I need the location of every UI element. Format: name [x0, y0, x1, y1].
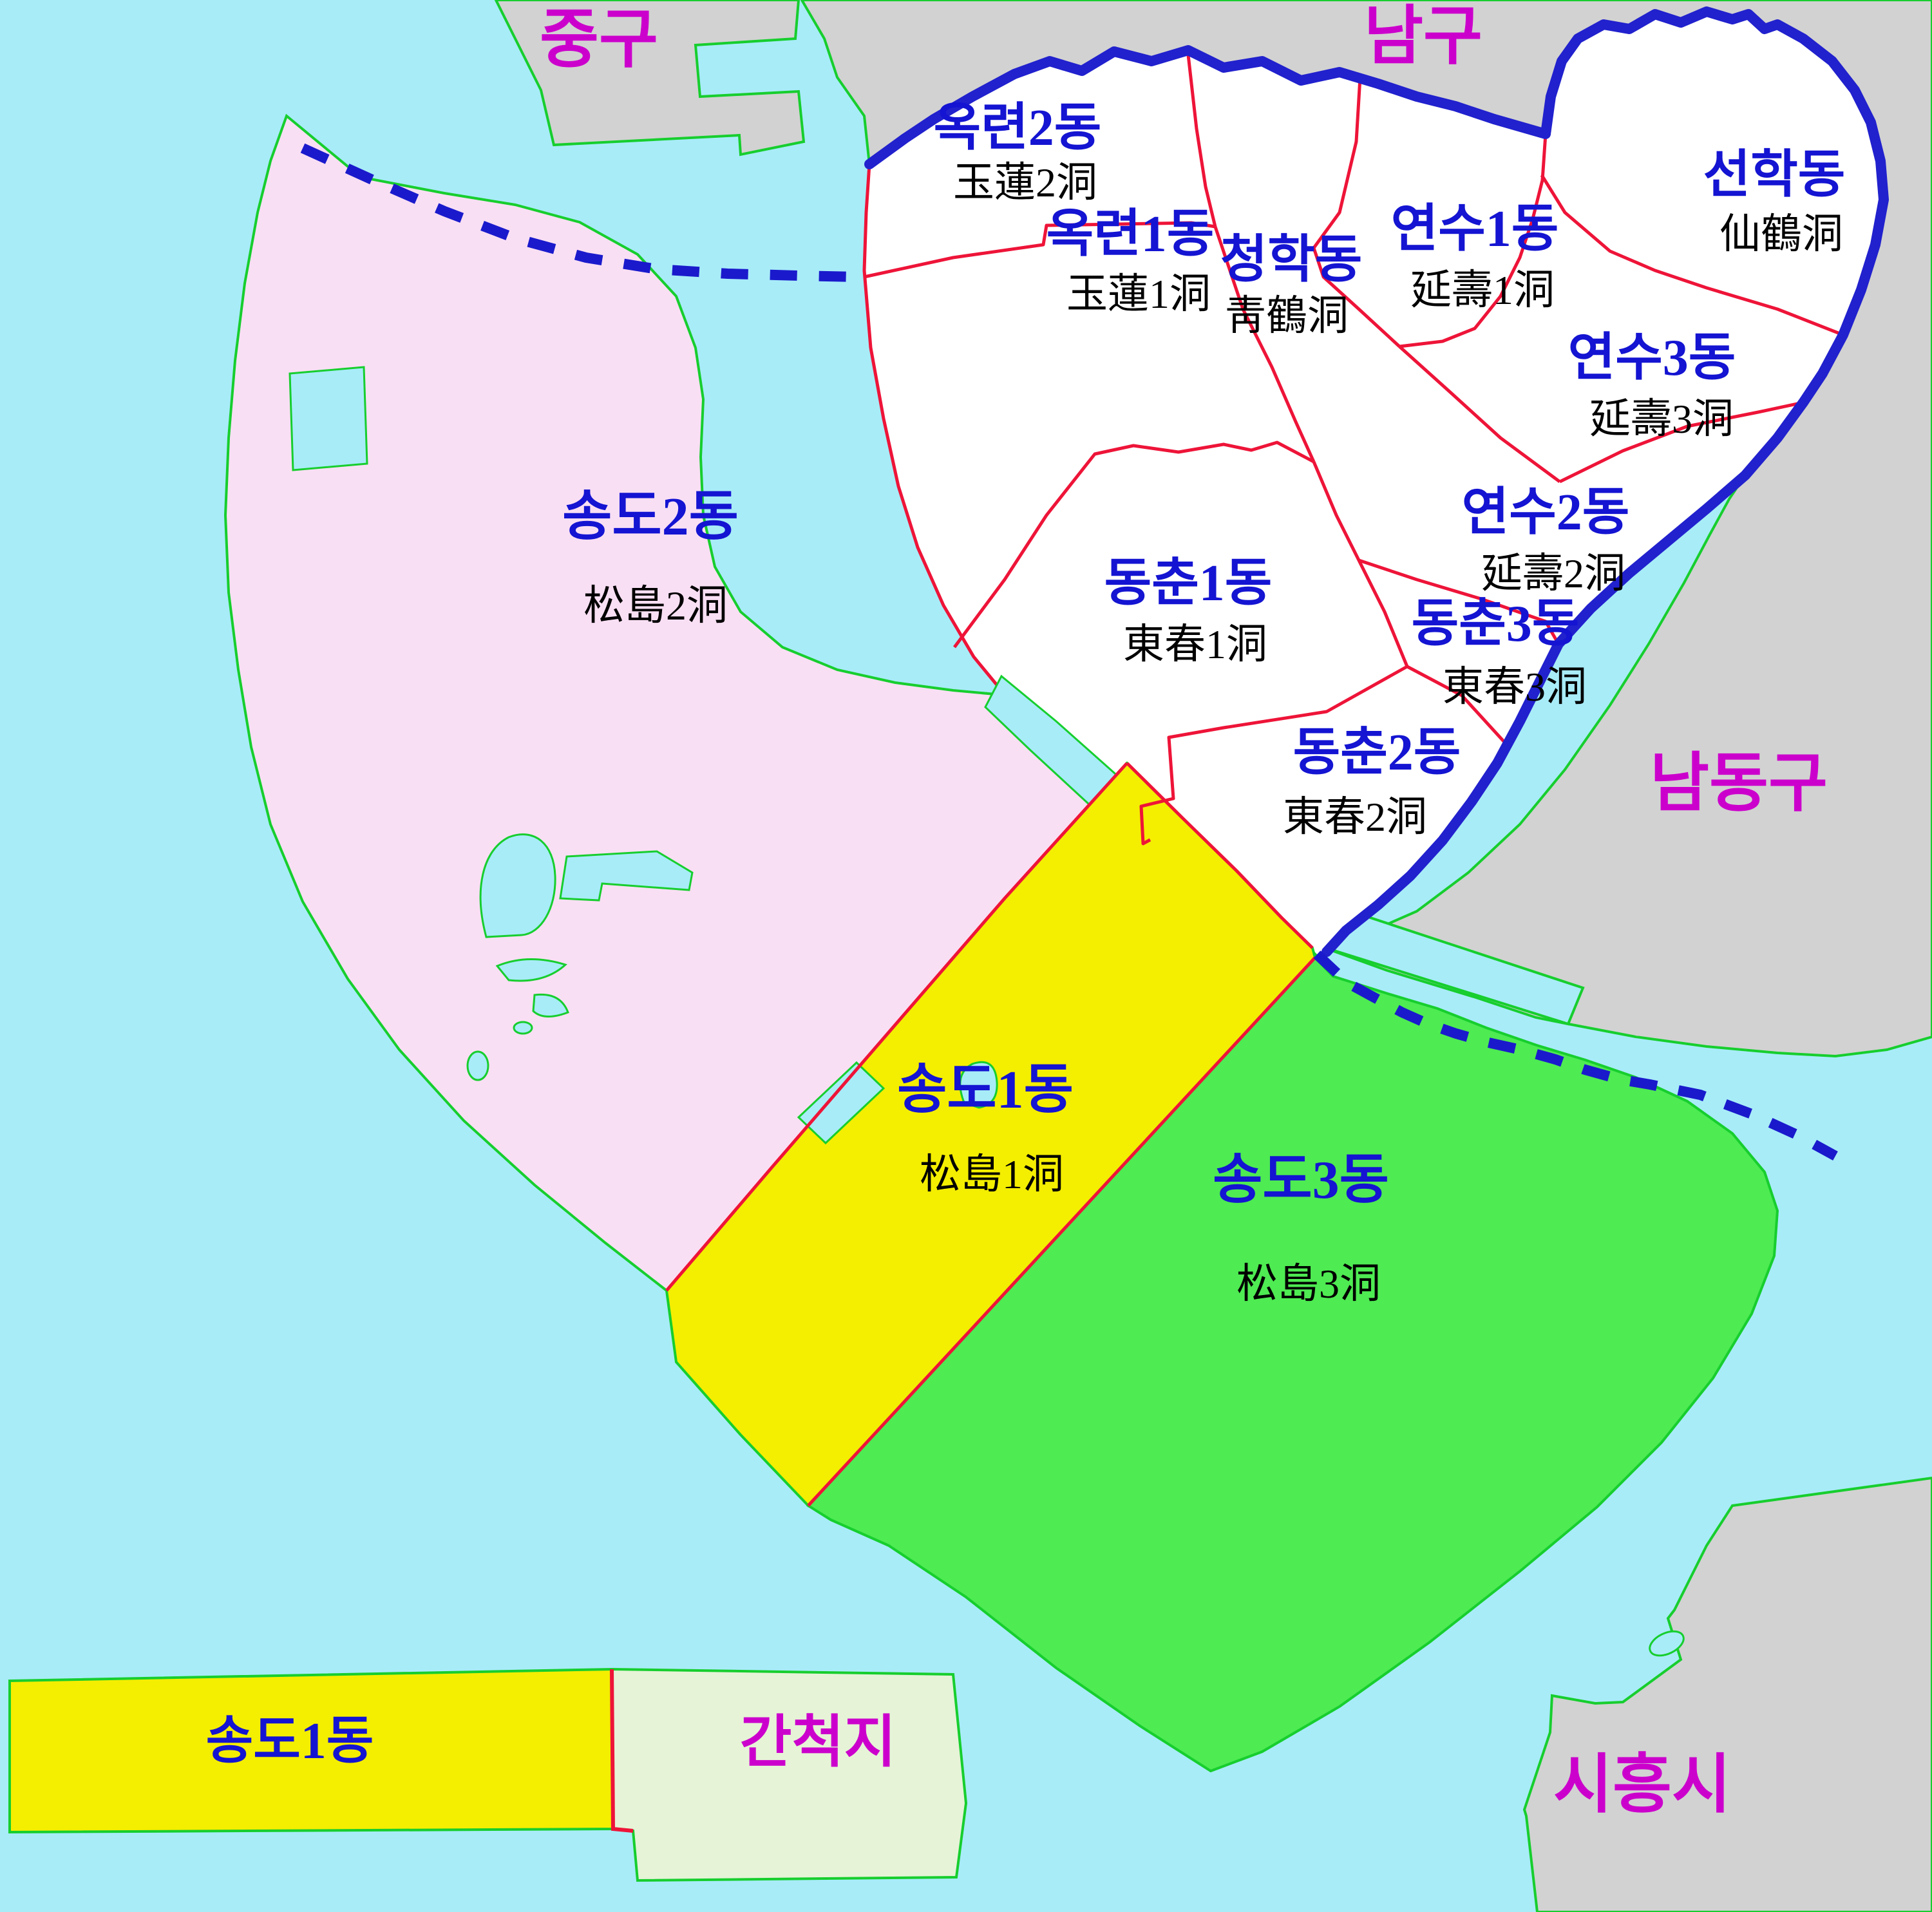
label-songdo3-ko: 송도3동 — [1213, 1150, 1389, 1210]
songdo2-pond1 — [514, 1022, 532, 1034]
label-yeonsu1-hanja: 延壽1洞 — [1410, 267, 1555, 313]
label-okryeon1-hanja: 玉蓮1洞 — [1066, 271, 1211, 317]
songdo2-marina-notch — [290, 367, 367, 470]
label-dongchun3-ko: 동춘3동 — [1412, 596, 1580, 652]
label-yeonsu2-hanja: 延壽2洞 — [1481, 551, 1625, 596]
label-cheonghak-ko: 청학동 — [1220, 232, 1363, 289]
map-root: { "map": { "type": "administrative-distr… — [0, 0, 1932, 1912]
label-okryeon2-ko: 옥련2동 — [934, 100, 1102, 156]
label-yeonsu3-hanja: 延壽3洞 — [1589, 396, 1734, 442]
label-dongchun2-hanja: 東春2洞 — [1283, 794, 1427, 840]
label-songdo3-hanja: 松島3洞 — [1236, 1261, 1381, 1307]
region-reclaimed — [612, 1669, 966, 1880]
label-yeonsu3-ko: 연수3동 — [1568, 330, 1736, 386]
label-okryeon1-ko: 옥련1동 — [1046, 206, 1215, 263]
label-seonhak-hanja: 仙鶴洞 — [1719, 211, 1843, 257]
label-songdo2-hanja: 松島2洞 — [583, 583, 728, 629]
label-yeonsu1-ko: 연수1동 — [1391, 201, 1559, 258]
map-canvas: 중구 남구 남동구 시흥시 간척지 옥련2동 玉蓮2洞 옥련1동 玉蓮1洞 청학… — [0, 0, 1932, 1912]
label-songdo1-hanja: 松島1洞 — [920, 1151, 1064, 1197]
label-songdo2-ko: 송도2동 — [562, 487, 739, 547]
label-dongchun1-hanja: 東春1洞 — [1123, 621, 1267, 667]
label-reclaimed: 간척지 — [740, 1710, 896, 1774]
label-dongchun2-ko: 동춘2동 — [1293, 724, 1461, 781]
label-siheung-si: 시흥시 — [1553, 1748, 1731, 1821]
songdo2-pond2 — [468, 1052, 488, 1080]
label-jung-gu: 중구 — [540, 3, 658, 75]
label-yeonsu2-ko: 연수2동 — [1462, 484, 1630, 541]
label-dongchun3-hanja: 東春3洞 — [1443, 664, 1587, 710]
label-songdo1-ko: 송도1동 — [897, 1060, 1074, 1120]
label-cheonghak-hanja: 靑鶴洞 — [1225, 293, 1349, 339]
label-nam-gu: 남구 — [1364, 0, 1482, 72]
label-seonhak-ko: 선학동 — [1703, 147, 1846, 204]
label-namdong-gu: 남동구 — [1650, 747, 1828, 819]
label-okryeon2-hanja: 玉蓮2洞 — [953, 160, 1097, 205]
label-songdo1-south-ko: 송도1동 — [206, 1713, 374, 1770]
label-dongchun1-ko: 동춘1동 — [1104, 555, 1273, 612]
